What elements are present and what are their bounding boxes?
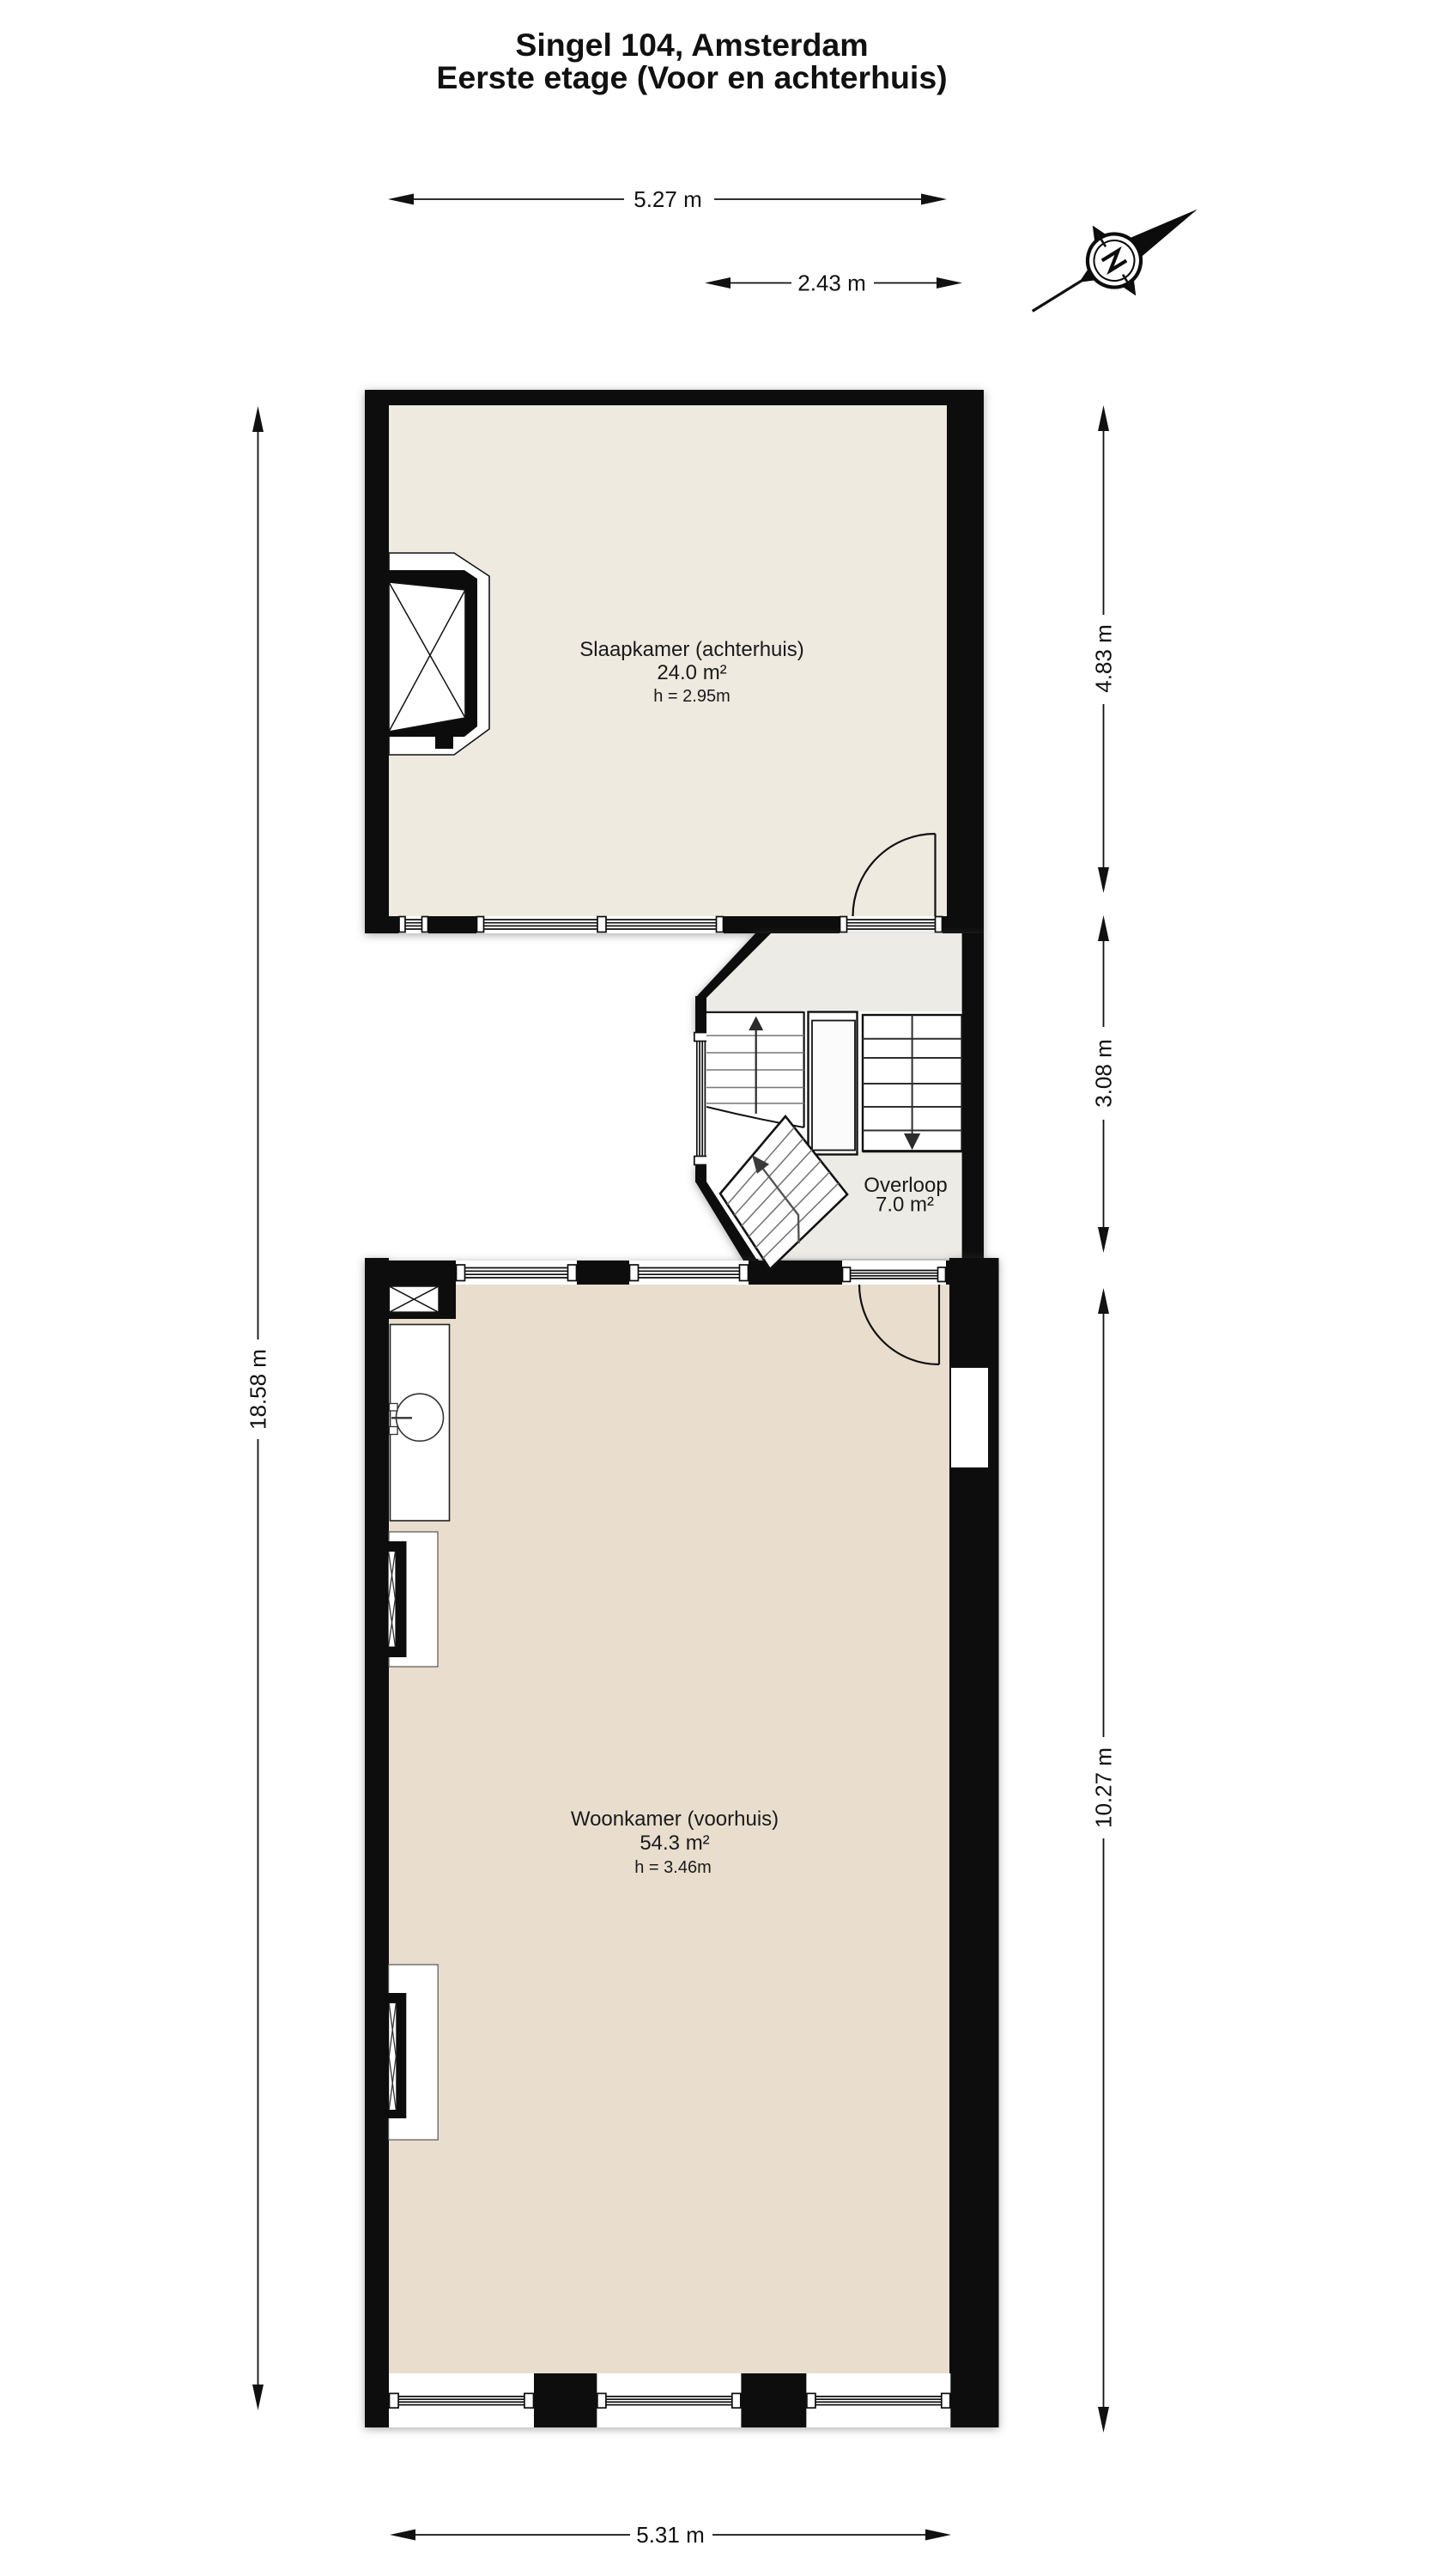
- svg-text:54.3 m²: 54.3 m²: [640, 1832, 709, 1855]
- svg-text:Singel 104, Amsterdam: Singel 104, Amsterdam: [515, 27, 868, 63]
- svg-text:Slaapkamer (achterhuis): Slaapkamer (achterhuis): [579, 638, 803, 661]
- svg-text:18.58 m: 18.58 m: [246, 1349, 271, 1430]
- svg-text:5.31 m: 5.31 m: [636, 2522, 705, 2548]
- svg-text:4.83 m: 4.83 m: [1091, 624, 1117, 693]
- svg-text:2.43 m: 2.43 m: [797, 270, 866, 296]
- svg-text:10.27 m: 10.27 m: [1091, 1747, 1117, 1828]
- svg-text:5.27 m: 5.27 m: [634, 186, 702, 212]
- svg-text:h = 2.95m: h = 2.95m: [653, 687, 731, 706]
- svg-text:h = 3.46m: h = 3.46m: [634, 1858, 712, 1877]
- svg-text:3.08 m: 3.08 m: [1091, 1039, 1117, 1108]
- svg-text:7.0 m²: 7.0 m²: [876, 1194, 934, 1217]
- svg-text:Woonkamer (voorhuis): Woonkamer (voorhuis): [571, 1807, 779, 1831]
- svg-text:24.0 m²: 24.0 m²: [657, 661, 726, 684]
- svg-text:Eerste etage (Voor en achterhu: Eerste etage (Voor en achterhuis): [436, 59, 947, 95]
